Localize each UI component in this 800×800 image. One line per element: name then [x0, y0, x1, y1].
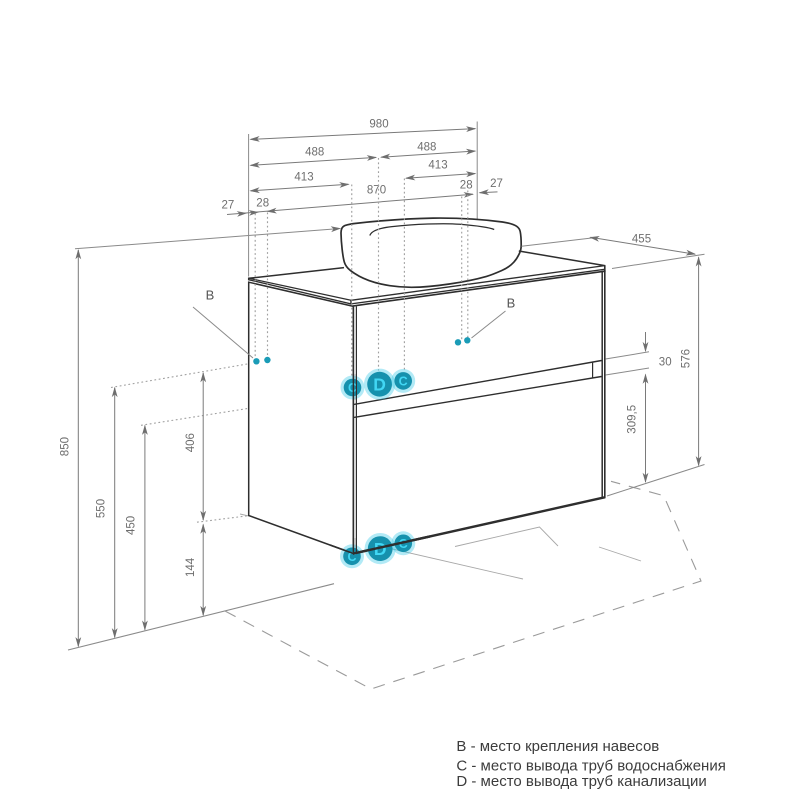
svg-text:27: 27: [490, 178, 503, 190]
svg-text:850: 850: [60, 437, 72, 456]
svg-text:28: 28: [256, 197, 269, 209]
svg-text:B - место крепления навесов: B - место крепления навесов: [456, 738, 659, 755]
svg-text:30: 30: [659, 357, 672, 369]
svg-text:980: 980: [369, 119, 388, 131]
svg-text:406: 406: [185, 433, 197, 452]
svg-text:D: D: [373, 375, 386, 395]
svg-text:413: 413: [294, 172, 313, 184]
svg-text:27: 27: [222, 200, 235, 212]
svg-text:D - место вывода труб канализа: D - место вывода труб канализации: [456, 773, 706, 790]
svg-text:144: 144: [185, 557, 197, 577]
svg-text:455: 455: [632, 234, 651, 246]
svg-text:576: 576: [681, 349, 693, 368]
svg-text:C: C: [399, 374, 408, 388]
svg-text:550: 550: [96, 499, 108, 518]
svg-text:B: B: [507, 296, 516, 311]
svg-text:870: 870: [367, 185, 386, 197]
svg-text:309,5: 309,5: [627, 405, 639, 434]
svg-text:28: 28: [460, 180, 473, 192]
svg-text:488: 488: [305, 147, 324, 159]
svg-text:413: 413: [428, 160, 447, 172]
svg-text:C: C: [348, 381, 357, 395]
svg-text:B: B: [206, 288, 215, 303]
svg-text:C - место вывода труб водоснаб: C - место вывода труб водоснабжения: [456, 758, 725, 775]
svg-text:488: 488: [417, 142, 436, 154]
svg-text:450: 450: [126, 516, 138, 535]
